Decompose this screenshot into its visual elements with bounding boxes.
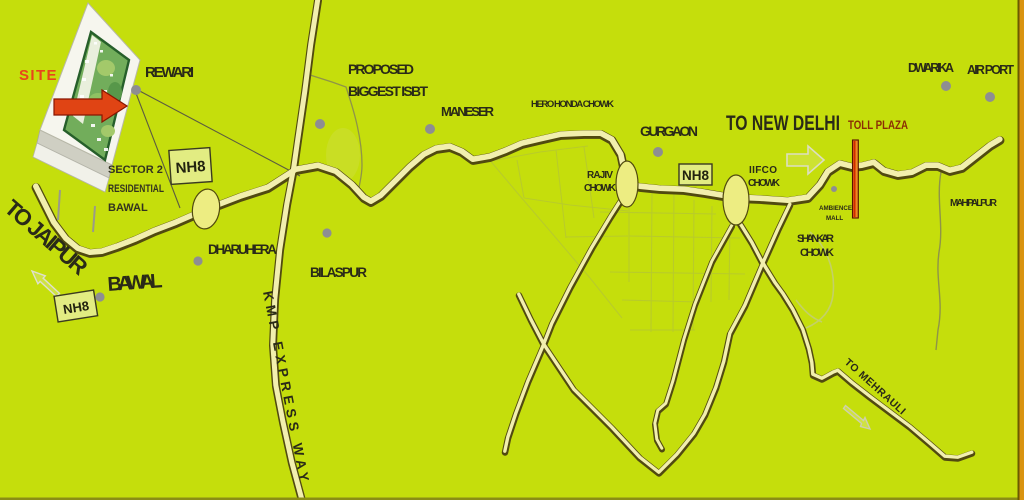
svg-text:TO NEW DELHI: TO NEW DELHI xyxy=(726,112,840,135)
svg-text:AIR PORT: AIR PORT xyxy=(967,63,1014,77)
svg-text:HERO HONDA CHOWK: HERO HONDA CHOWK xyxy=(531,99,614,110)
svg-text:MANESER: MANESER xyxy=(441,104,495,119)
svg-text:MAHIPALPUR: MAHIPALPUR xyxy=(950,198,998,209)
svg-text:AMBIENCE: AMBIENCE xyxy=(819,205,852,212)
svg-text:SHANKAR: SHANKAR xyxy=(797,233,834,245)
svg-text:IIFCO: IIFCO xyxy=(749,165,777,176)
svg-text:CHOWK: CHOWK xyxy=(748,178,781,189)
svg-text:DHARUHERA: DHARUHERA xyxy=(208,242,277,257)
svg-text:REWARI: REWARI xyxy=(145,64,194,81)
svg-text:GURGAON: GURGAON xyxy=(640,123,698,139)
svg-text:BAWAL: BAWAL xyxy=(108,202,148,214)
svg-text:BILASPUR: BILASPUR xyxy=(310,265,367,280)
svg-text:PROPOSED: PROPOSED xyxy=(348,61,414,77)
svg-text:NH8: NH8 xyxy=(175,158,206,177)
svg-text:NH8: NH8 xyxy=(682,168,709,183)
svg-text:CHOWK: CHOWK xyxy=(800,247,834,259)
svg-text:DWARIKA: DWARIKA xyxy=(908,61,954,75)
svg-text:RESIDENTIAL: RESIDENTIAL xyxy=(108,183,164,195)
svg-text:CHOWK: CHOWK xyxy=(584,183,617,194)
svg-text:MALL: MALL xyxy=(826,215,843,222)
svg-text:SITE: SITE xyxy=(19,67,59,84)
svg-text:BIGGEST ISBT: BIGGEST ISBT xyxy=(348,83,428,99)
svg-text:SECTOR 2: SECTOR 2 xyxy=(108,164,163,176)
svg-text:BAWAL: BAWAL xyxy=(107,270,163,296)
svg-text:RAJIV: RAJIV xyxy=(587,170,613,181)
svg-text:TOLL PLAZA: TOLL PLAZA xyxy=(848,120,908,132)
